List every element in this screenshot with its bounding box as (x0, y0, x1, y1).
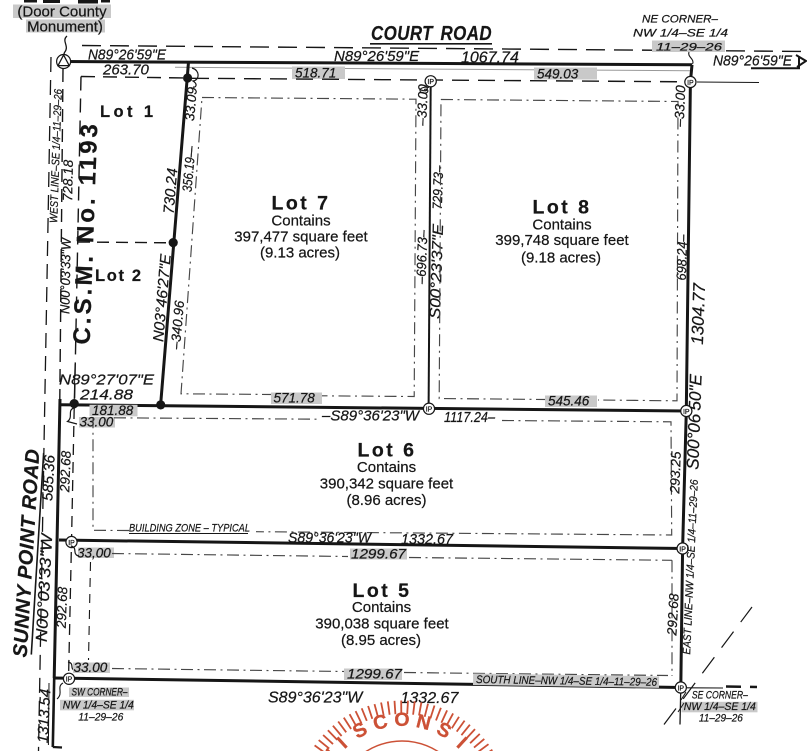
svg-text:292.68: 292.68 (57, 450, 73, 493)
svg-text:NE CORNER–: NE CORNER– (642, 14, 719, 26)
svg-text:1117.24–: 1117.24– (444, 409, 496, 426)
svg-text:Contains: Contains (352, 599, 411, 616)
svg-text:S00°06'50"E: S00°06'50"E (683, 373, 705, 470)
svg-text:1299.67: 1299.67 (351, 547, 407, 562)
svg-text:Monument): Monument) (27, 19, 103, 36)
svg-text:NW 1/4–SE 1/4: NW 1/4–SE 1/4 (633, 28, 728, 40)
svg-text:292.68: 292.68 (54, 586, 70, 629)
svg-text:NW 1/4–SE 1/4: NW 1/4–SE 1/4 (63, 700, 134, 712)
svg-text:1304.77: 1304.77 (688, 282, 709, 345)
svg-text:Contains: Contains (357, 459, 416, 476)
svg-text:SW CORNER–: SW CORNER– (72, 687, 129, 699)
svg-text:549.03: 549.03 (537, 67, 579, 82)
svg-text:S00°23'37"E: S00°23'37"E (427, 223, 447, 320)
svg-text:545.46: 545.46 (548, 394, 590, 409)
svg-text:390,038 square feet: 390,038 square feet (315, 616, 449, 633)
svg-text:N00°03'33"W: N00°03'33"W (57, 237, 73, 314)
svg-text:S89°36'23"W: S89°36'23"W (288, 530, 373, 547)
svg-text:33,00: 33,00 (77, 546, 111, 561)
svg-text:BUILDING ZONE – TYPICAL: BUILDING ZONE – TYPICAL (129, 523, 250, 535)
svg-text:1332.67: 1332.67 (401, 531, 454, 548)
svg-text:IP: IP (66, 677, 73, 684)
svg-text:Contains: Contains (271, 213, 330, 230)
svg-text:(8.95 acres): (8.95 acres) (341, 632, 421, 649)
svg-text:S89°36'23"W: S89°36'23"W (268, 690, 364, 707)
svg-text:293.25: 293.25 (667, 451, 684, 495)
svg-text:N89°26'59"E: N89°26'59"E (334, 48, 420, 65)
svg-text:518.71: 518.71 (295, 66, 336, 81)
svg-text:–33.00: –33.00 (672, 85, 688, 128)
svg-text:397,477 square feet: 397,477 square feet (234, 229, 368, 246)
svg-text:Contains: Contains (532, 216, 591, 233)
svg-text:729.73–: 729.73– (430, 165, 447, 210)
svg-text:–33.00: –33.00 (414, 84, 430, 127)
svg-text:COURT ROAD: COURT ROAD (371, 23, 492, 45)
svg-text:(9.18 acres): (9.18 acres) (521, 249, 601, 266)
svg-text:Lot 1: Lot 1 (100, 103, 155, 121)
svg-text:1299.67: 1299.67 (347, 667, 403, 682)
svg-text:SE CORNER–: SE CORNER– (692, 690, 749, 702)
svg-text:Lot 8: Lot 8 (532, 197, 591, 219)
svg-text:1313.54: 1313.54 (35, 688, 55, 743)
svg-text:399,748 square feet: 399,748 square feet (495, 232, 629, 249)
svg-text:698.24–: 698.24– (674, 234, 691, 281)
svg-text:11–29–26: 11–29–26 (699, 713, 744, 725)
svg-text:IP: IP (426, 407, 433, 414)
svg-text:33.00: 33.00 (74, 660, 108, 675)
svg-text:1067.74: 1067.74 (461, 50, 519, 67)
svg-text:263.70: 263.70 (102, 62, 150, 79)
svg-text:IP: IP (683, 409, 690, 416)
svg-text:1332.67: 1332.67 (401, 690, 460, 707)
svg-text:(8.96 acres): (8.96 acres) (346, 492, 426, 509)
svg-text:–S89°36'23"W: –S89°36'23"W (321, 407, 421, 424)
svg-text:571.78: 571.78 (274, 391, 316, 406)
svg-text:585.36: 585.36 (39, 454, 58, 501)
svg-text:214.88: 214.88 (79, 387, 134, 404)
svg-text:292.68: 292.68 (664, 593, 681, 637)
svg-text:390,342 square feet: 390,342 square feet (320, 475, 454, 492)
svg-text:NW 1/4–SE 1/4: NW 1/4–SE 1/4 (684, 701, 756, 713)
svg-text:Lot 7: Lot 7 (271, 193, 330, 215)
svg-text:O: O (394, 709, 409, 731)
svg-text:11–29–26: 11–29–26 (656, 42, 723, 54)
svg-text:33.00: 33.00 (80, 415, 114, 430)
svg-text:33.09: 33.09 (182, 86, 200, 121)
svg-text:N89°26'59"E: N89°26'59"E (713, 53, 793, 70)
svg-text:IP: IP (677, 685, 684, 692)
svg-text:11–29–26: 11–29–26 (78, 712, 124, 724)
svg-text:728.18: 728.18 (60, 159, 76, 201)
svg-text:Lot 2: Lot 2 (95, 267, 143, 285)
svg-text:(9.13 acres): (9.13 acres) (260, 245, 340, 262)
